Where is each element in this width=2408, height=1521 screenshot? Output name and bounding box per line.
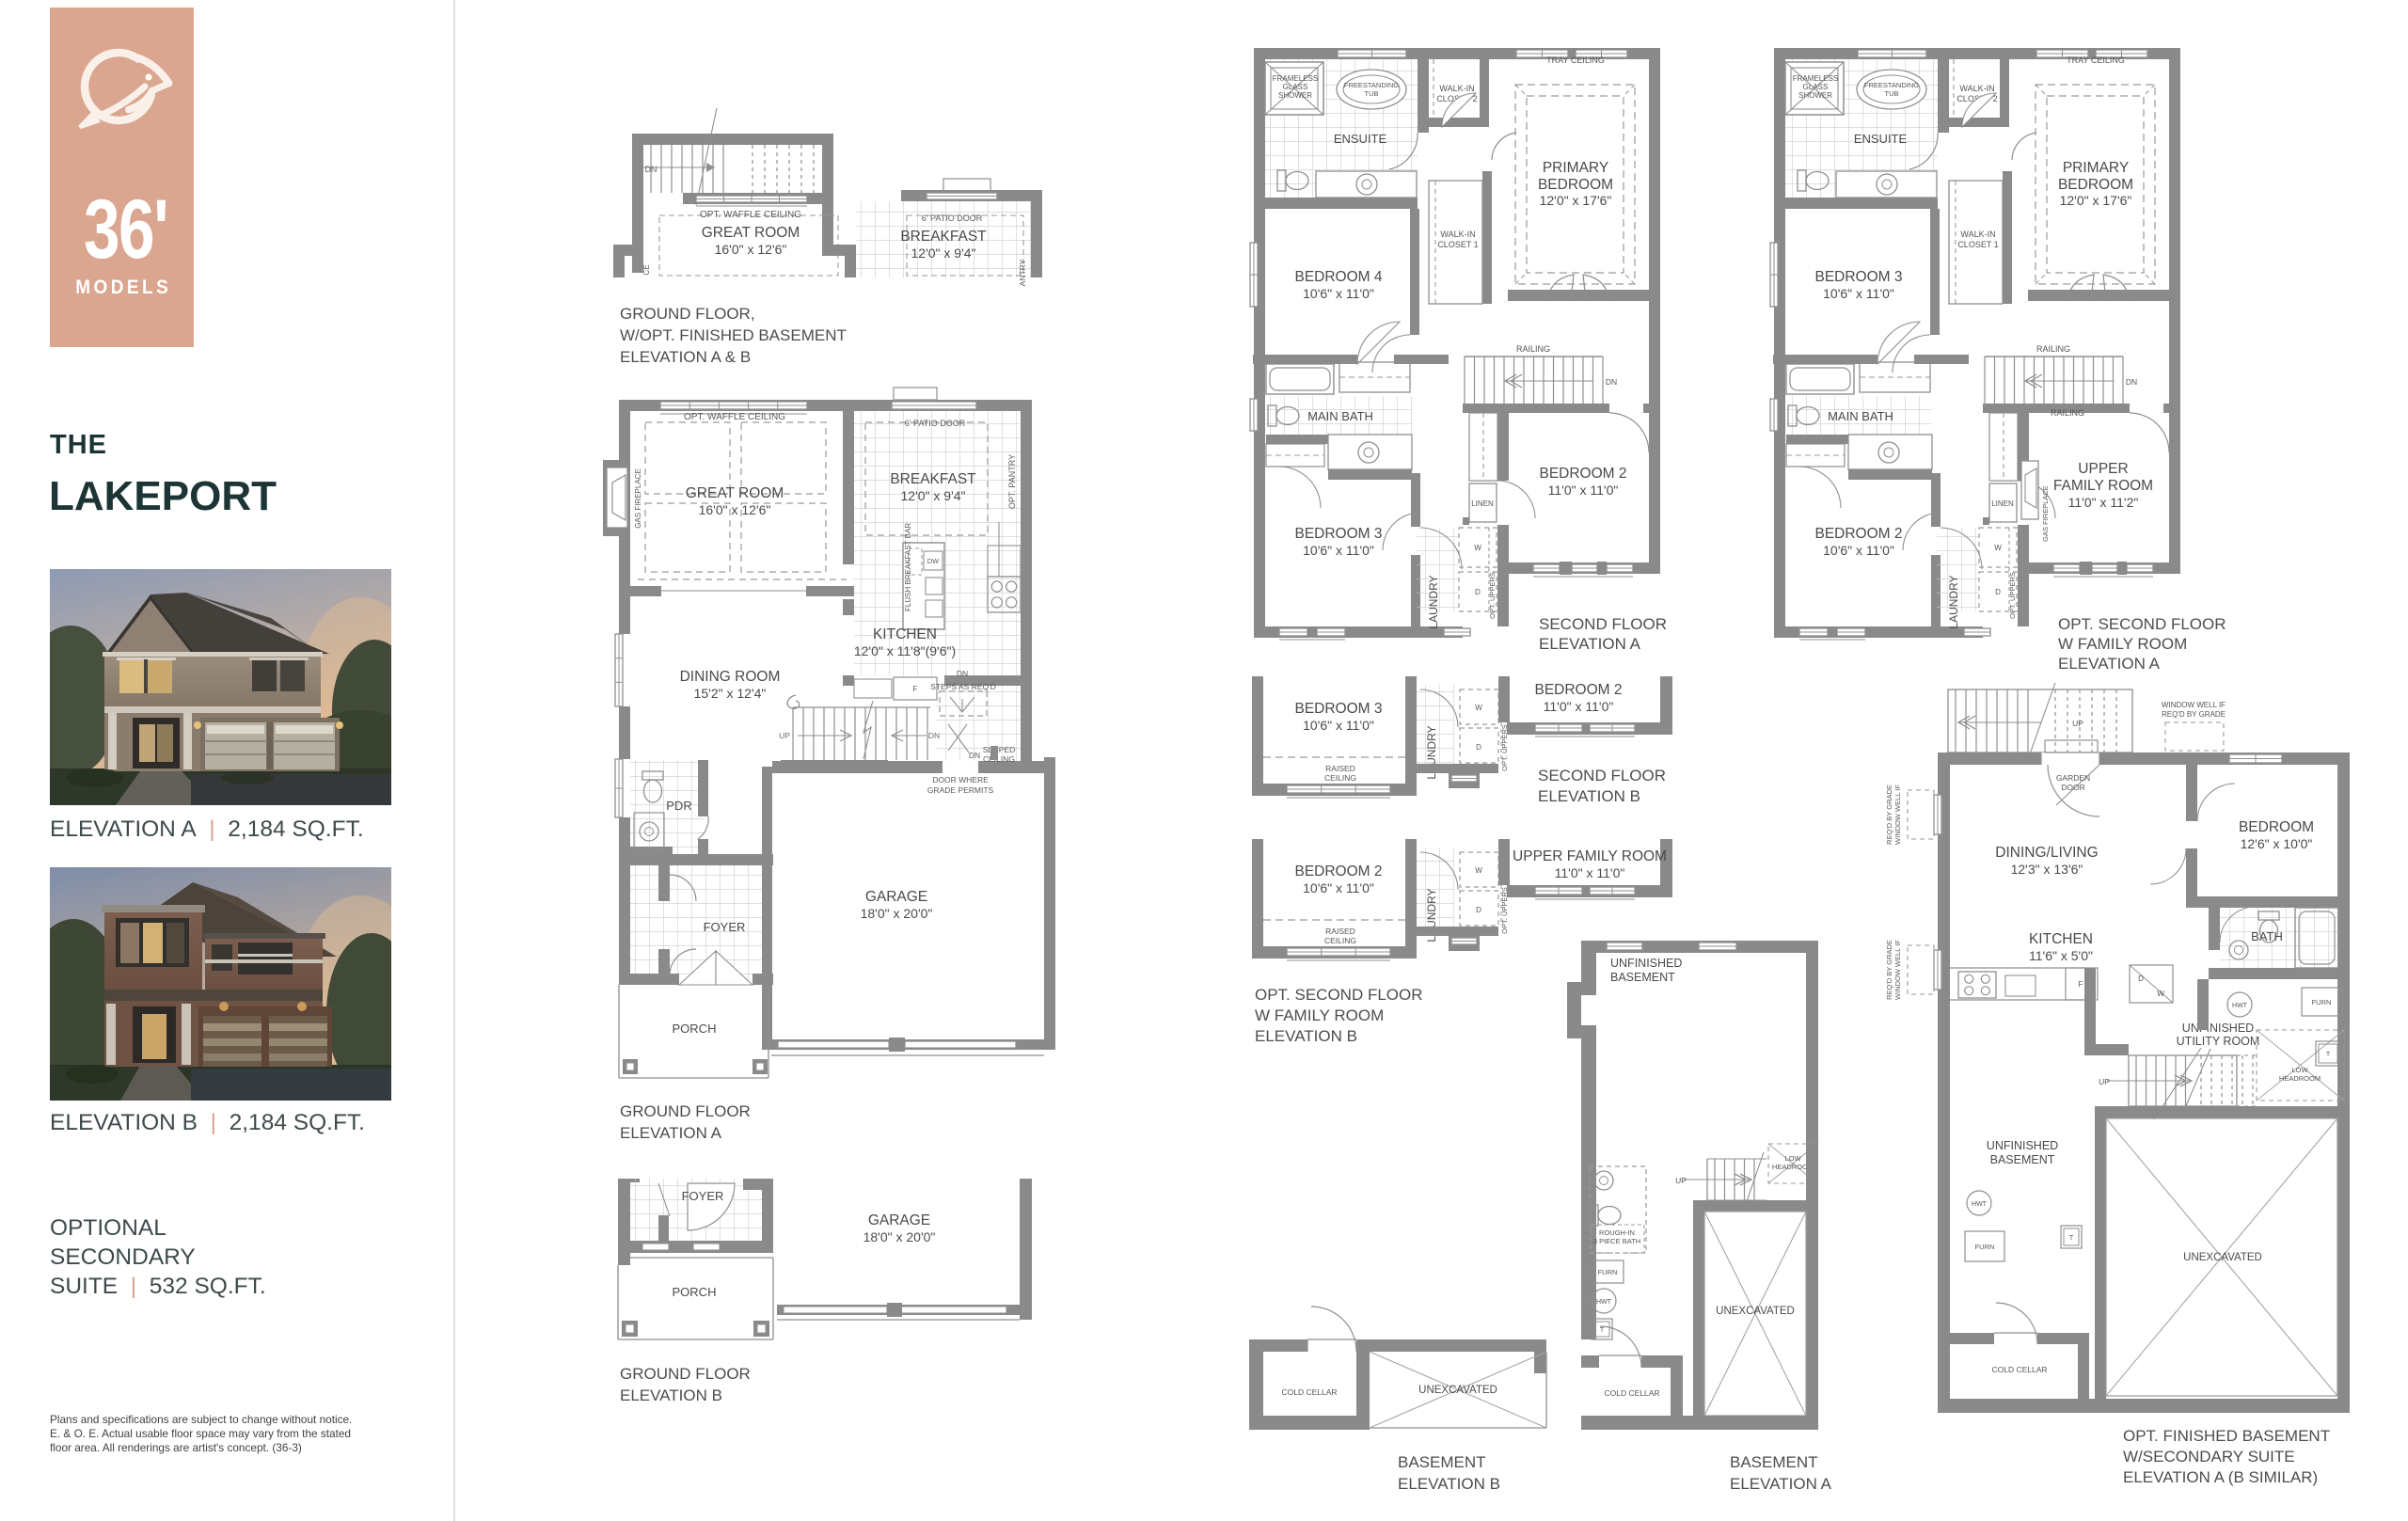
svg-text:ELEVATION A: ELEVATION A — [1539, 635, 1641, 653]
svg-text:SLOPED: SLOPED — [983, 745, 1016, 754]
svg-text:CEILING: CEILING — [1324, 773, 1356, 783]
svg-text:10'6" x 11'0": 10'6" x 11'0" — [1303, 880, 1374, 895]
svg-text:GROUND FLOOR: GROUND FLOOR — [620, 1102, 751, 1120]
svg-text:ENSUITE: ENSUITE — [1854, 132, 1908, 146]
svg-text:UNEXCAVATED: UNEXCAVATED — [2183, 1252, 2262, 1263]
svg-text:HWT: HWT — [1596, 1299, 1612, 1306]
svg-text:D: D — [1995, 588, 2001, 596]
svg-text:ELEVATION A & B: ELEVATION A & B — [620, 348, 751, 366]
svg-text:GARAGE: GARAGE — [868, 1212, 930, 1228]
svg-text:BEDROOM: BEDROOM — [2239, 819, 2314, 835]
svg-text:FOYER: FOYER — [682, 1189, 724, 1203]
svg-text:LOW: LOW — [1784, 1154, 1801, 1163]
svg-text:ELEVATION A: ELEVATION A — [1730, 1475, 1832, 1493]
svg-text:ELEVATION B: ELEVATION B — [620, 1386, 722, 1404]
svg-text:UNFINISHED: UNFINISHED — [2182, 1022, 2254, 1035]
svg-text:OPT. WAFFLE CEILING: OPT. WAFFLE CEILING — [684, 412, 785, 422]
svg-text:WINDOW WELL IF: WINDOW WELL IF — [1893, 784, 1902, 845]
svg-text:PDR: PDR — [666, 799, 691, 813]
svg-text:KITCHEN: KITCHEN — [873, 626, 937, 642]
svg-text:F: F — [2079, 980, 2083, 989]
svg-text:18'0" x 20'0": 18'0" x 20'0" — [861, 906, 933, 921]
svg-text:GAS FIREPLACE: GAS FIREPLACE — [634, 468, 642, 529]
svg-text:ELEVATION B: ELEVATION B — [1398, 1475, 1500, 1493]
svg-text:OPT. PANTRY: OPT. PANTRY — [1007, 454, 1017, 509]
svg-text:12'0" x 9'4": 12'0" x 9'4" — [911, 246, 976, 261]
svg-text:GROUND FLOOR: GROUND FLOOR — [620, 1365, 751, 1383]
svg-text:RAILING: RAILING — [2036, 344, 2070, 354]
svg-text:ROUGH-IN: ROUGH-IN — [1599, 1228, 1635, 1237]
svg-text:RAILING: RAILING — [1516, 344, 1550, 354]
svg-text:GLASS: GLASS — [1283, 83, 1308, 91]
svg-text:UTILITY ROOM: UTILITY ROOM — [2177, 1035, 2260, 1048]
svg-text:TRAY CEILING: TRAY CEILING — [1546, 55, 1605, 65]
svg-text:UP: UP — [2099, 1077, 2110, 1086]
svg-text:OPT. UPPERS: OPT. UPPERS — [2008, 572, 2017, 619]
svg-text:F: F — [913, 685, 918, 693]
svg-text:WALK-IN: WALK-IN — [1439, 84, 1474, 93]
svg-text:10'6" x 11'0": 10'6" x 11'0" — [1303, 543, 1374, 558]
svg-text:DINING ROOM: DINING ROOM — [680, 669, 781, 685]
svg-text:6' PATIO DOOR: 6' PATIO DOOR — [905, 419, 966, 428]
svg-text:REQ'D BY GRADE: REQ'D BY GRADE — [1885, 940, 1893, 1000]
svg-text:T: T — [2069, 1235, 2074, 1242]
svg-text:UNEXCAVATED: UNEXCAVATED — [1418, 1385, 1497, 1396]
svg-text:10'6" x 11'0": 10'6" x 11'0" — [1303, 286, 1374, 301]
svg-text:RAISED: RAISED — [1325, 764, 1355, 773]
svg-text:W: W — [1474, 544, 1481, 552]
svg-text:FRAMELESS: FRAMELESS — [1793, 74, 1838, 83]
svg-text:FREESTANDING: FREESTANDING — [1344, 81, 1399, 89]
svg-text:12'6" x 10'0": 12'6" x 10'0" — [2241, 836, 2313, 851]
svg-text:BREAKFAST: BREAKFAST — [890, 471, 976, 487]
svg-text:GREAT ROOM: GREAT ROOM — [702, 225, 800, 241]
svg-text:W: W — [1475, 704, 1482, 712]
svg-text:ELEVATION A: ELEVATION A — [2058, 655, 2161, 673]
svg-text:FURN: FURN — [2312, 998, 2332, 1006]
svg-text:12'0" x 17'6": 12'0" x 17'6" — [1540, 193, 1612, 208]
svg-text:BEDROOM 2: BEDROOM 2 — [1539, 466, 1626, 482]
svg-text:W FAMILY ROOM: W FAMILY ROOM — [2058, 635, 2187, 653]
svg-text:15'2" x 12'4": 15'2" x 12'4" — [694, 686, 767, 701]
svg-text:BEDROOM 2: BEDROOM 2 — [1534, 682, 1622, 698]
svg-text:UP: UP — [1675, 1176, 1687, 1185]
svg-text:DOOR: DOOR — [2061, 783, 2085, 792]
svg-text:TRAY CEILING: TRAY CEILING — [2067, 55, 2125, 65]
svg-text:OPT. SECOND FLOOR: OPT. SECOND FLOOR — [1255, 986, 1423, 1004]
svg-text:KITCHEN: KITCHEN — [2029, 931, 2093, 947]
svg-text:SECOND FLOOR: SECOND FLOOR — [1539, 615, 1667, 633]
svg-text:D: D — [1476, 743, 1481, 752]
svg-text:ELEVATION A (B SIMILAR): ELEVATION A (B SIMILAR) — [2123, 1468, 2318, 1486]
svg-text:STEPS AS REQ'D: STEPS AS REQ'D — [930, 682, 996, 691]
svg-text:D: D — [2138, 974, 2144, 983]
svg-text:PORCH: PORCH — [673, 1022, 717, 1036]
svg-text:WALK-IN: WALK-IN — [1440, 230, 1475, 239]
svg-text:SECOND FLOOR: SECOND FLOOR — [1538, 767, 1666, 784]
svg-text:CEILING: CEILING — [1324, 936, 1356, 945]
svg-text:18'0" x 20'0": 18'0" x 20'0" — [863, 1229, 936, 1244]
svg-text:11'6" x 5'0": 11'6" x 5'0" — [2029, 948, 2093, 963]
svg-text:FOYER: FOYER — [704, 920, 746, 934]
svg-text:BEDROOM 4: BEDROOM 4 — [1294, 269, 1382, 285]
svg-text:WINDOW WELL IF: WINDOW WELL IF — [1893, 940, 1902, 1000]
svg-text:GAS FIREPLACE: GAS FIREPLACE — [2041, 485, 2050, 542]
svg-text:BEDROOM 2: BEDROOM 2 — [1294, 863, 1382, 879]
svg-text:COLD CELLAR: COLD CELLAR — [1991, 1365, 2047, 1374]
svg-text:ELEVATION B: ELEVATION B — [1255, 1027, 1357, 1045]
svg-text:COLD CELLAR: COLD CELLAR — [1604, 1388, 1659, 1398]
svg-text:BEDROOM: BEDROOM — [2058, 177, 2133, 193]
svg-text:GROUND FLOOR,: GROUND FLOOR, — [620, 305, 755, 323]
svg-text:FURN: FURN — [1975, 1243, 1995, 1251]
svg-text:BASEMENT: BASEMENT — [1610, 971, 1675, 984]
svg-text:RAILING: RAILING — [2051, 408, 2084, 418]
svg-text:BEDROOM 3: BEDROOM 3 — [1814, 269, 1902, 285]
svg-text:GARDEN: GARDEN — [2056, 773, 2090, 783]
svg-text:UNFINISHED: UNFINISHED — [1987, 1139, 2058, 1152]
svg-text:12'0" x 9'4": 12'0" x 9'4" — [901, 488, 966, 503]
svg-text:OPT. UPPERS: OPT. UPPERS — [1488, 572, 1497, 619]
svg-text:HWT: HWT — [1972, 1201, 1988, 1208]
svg-text:SHOWER: SHOWER — [1798, 91, 1832, 100]
svg-text:ENSUITE: ENSUITE — [1334, 132, 1387, 146]
svg-text:UPPER: UPPER — [2078, 461, 2128, 477]
svg-text:COLD CELLAR: COLD CELLAR — [1281, 1387, 1337, 1397]
svg-text:UPPER FAMILY ROOM: UPPER FAMILY ROOM — [1513, 848, 1667, 864]
svg-text:PRIMARY: PRIMARY — [1543, 160, 1608, 176]
svg-text:W FAMILY ROOM: W FAMILY ROOM — [1255, 1006, 1384, 1024]
svg-text:DN: DN — [969, 751, 980, 760]
svg-text:CLOSET 1: CLOSET 1 — [1957, 240, 1998, 249]
svg-text:WALK-IN: WALK-IN — [1959, 84, 1994, 93]
svg-text:HEADROOM: HEADROOM — [2279, 1074, 2321, 1083]
svg-text:DW: DW — [927, 557, 940, 565]
svg-text:BASEMENT: BASEMENT — [1730, 1453, 1818, 1471]
svg-text:ANTRY: ANTRY — [1018, 259, 1027, 286]
svg-text:FAMILY ROOM: FAMILY ROOM — [2053, 478, 2153, 494]
svg-text:WINDOW WELL IF: WINDOW WELL IF — [2162, 701, 2226, 709]
svg-text:LINEN: LINEN — [1991, 499, 2014, 508]
svg-text:PRIMARY: PRIMARY — [2063, 160, 2129, 176]
svg-text:BASEMENT: BASEMENT — [1398, 1453, 1486, 1471]
svg-text:DN: DN — [645, 165, 657, 174]
svg-text:DINING/LIVING: DINING/LIVING — [1995, 845, 2098, 861]
svg-text:6' PATIO DOOR: 6' PATIO DOOR — [922, 214, 983, 223]
svg-text:MAIN BATH: MAIN BATH — [1828, 409, 1893, 423]
svg-text:CEILING: CEILING — [983, 754, 1015, 764]
svg-text:TUB: TUB — [1365, 89, 1379, 98]
svg-text:11'0" x 11'0": 11'0" x 11'0" — [1555, 865, 1625, 880]
svg-text:BEDROOM 2: BEDROOM 2 — [1814, 526, 1902, 542]
svg-text:LOW: LOW — [2291, 1066, 2308, 1074]
svg-text:BEDROOM 3: BEDROOM 3 — [1294, 526, 1382, 542]
svg-text:HWT: HWT — [2232, 1003, 2248, 1009]
svg-text:10'6" x 11'0": 10'6" x 11'0" — [1823, 543, 1894, 558]
svg-text:UNEXCAVATED: UNEXCAVATED — [1716, 1306, 1795, 1317]
svg-text:DOOR WHERE: DOOR WHERE — [932, 775, 989, 784]
svg-text:W: W — [1994, 544, 2002, 552]
svg-text:DN: DN — [1606, 377, 1617, 387]
svg-text:BASEMENT: BASEMENT — [1990, 1153, 2055, 1166]
svg-text:PORCH: PORCH — [673, 1285, 717, 1299]
svg-text:W/SECONDARY SUITE: W/SECONDARY SUITE — [2123, 1448, 2295, 1466]
svg-text:T: T — [2326, 1052, 2331, 1058]
svg-text:12'0" x 11'8"(9'6"): 12'0" x 11'8"(9'6") — [854, 643, 956, 658]
svg-text:LAUNDRY: LAUNDRY — [1427, 575, 1440, 628]
svg-text:11'0" x 11'0": 11'0" x 11'0" — [1548, 483, 1619, 498]
svg-text:RAISED: RAISED — [1325, 927, 1355, 936]
svg-text:D: D — [1476, 906, 1481, 914]
svg-text:FRAMELESS: FRAMELESS — [1273, 74, 1318, 83]
svg-text:WALK-IN: WALK-IN — [1960, 230, 1995, 239]
svg-text:OPT. WAFFLE CEILING: OPT. WAFFLE CEILING — [700, 210, 801, 220]
svg-text:10'6" x 11'0": 10'6" x 11'0" — [1823, 286, 1894, 301]
svg-text:REQ'D BY GRADE: REQ'D BY GRADE — [1885, 784, 1893, 845]
svg-text:LAUNDRY: LAUNDRY — [1947, 575, 1960, 628]
svg-text:UP: UP — [2072, 719, 2083, 728]
svg-text:D: D — [1475, 588, 1481, 596]
svg-text:CE: CE — [642, 264, 651, 275]
svg-text:16'0" x 12'6": 16'0" x 12'6" — [715, 242, 787, 257]
svg-text:W/OPT. FINISHED BASEMENT: W/OPT. FINISHED BASEMENT — [620, 326, 847, 344]
svg-text:SHOWER: SHOWER — [1278, 91, 1312, 100]
svg-text:ELEVATION B: ELEVATION B — [1538, 787, 1640, 805]
svg-text:DN: DN — [957, 669, 968, 678]
svg-text:12'0" x 17'6": 12'0" x 17'6" — [2060, 193, 2132, 208]
svg-text:UNFINISHED: UNFINISHED — [1610, 957, 1682, 970]
svg-text:UP: UP — [779, 731, 790, 740]
svg-text:BEDROOM 3: BEDROOM 3 — [1294, 701, 1382, 717]
svg-text:MAIN BATH: MAIN BATH — [1307, 409, 1373, 423]
svg-text:3 PIECE BATH: 3 PIECE BATH — [1593, 1237, 1640, 1245]
svg-text:REQ'D BY GRADE: REQ'D BY GRADE — [2162, 710, 2226, 719]
svg-text:GLASS: GLASS — [1803, 83, 1829, 91]
svg-text:DN: DN — [2126, 377, 2137, 387]
svg-text:ELEVATION A: ELEVATION A — [620, 1124, 722, 1142]
svg-text:16'0" x 12'6": 16'0" x 12'6" — [699, 502, 771, 517]
svg-text:LINEN: LINEN — [1471, 499, 1494, 508]
svg-text:W: W — [1475, 866, 1482, 875]
svg-text:GARAGE: GARAGE — [865, 889, 927, 905]
svg-text:GREAT ROOM: GREAT ROOM — [686, 485, 784, 501]
svg-text:11'0" x 11'2": 11'0" x 11'2" — [2068, 495, 2139, 510]
svg-text:FLUSH BREAKFAST BAR: FLUSH BREAKFAST BAR — [904, 523, 912, 611]
svg-text:FREESTANDING: FREESTANDING — [1864, 81, 1919, 89]
svg-text:T: T — [1600, 1327, 1605, 1334]
svg-text:FURN: FURN — [1598, 1268, 1618, 1276]
svg-text:BATH: BATH — [2251, 929, 2283, 943]
svg-text:OPT. SECOND FLOOR: OPT. SECOND FLOOR — [2058, 615, 2226, 633]
svg-text:CLOSET 1: CLOSET 1 — [1437, 240, 1478, 249]
svg-text:11'0" x 11'0": 11'0" x 11'0" — [1544, 699, 1614, 714]
svg-text:10'6" x 11'0": 10'6" x 11'0" — [1303, 718, 1374, 733]
svg-text:TUB: TUB — [1885, 89, 1899, 98]
svg-text:OPT. FINISHED BASEMENT: OPT. FINISHED BASEMENT — [2123, 1427, 2330, 1445]
svg-text:BEDROOM: BEDROOM — [1538, 177, 1613, 193]
svg-text:BREAKFAST: BREAKFAST — [900, 229, 987, 245]
svg-text:W: W — [2157, 990, 2164, 998]
svg-text:12'3" x 13'6": 12'3" x 13'6" — [2011, 862, 2083, 877]
svg-text:GRADE PERMITS: GRADE PERMITS — [927, 785, 994, 795]
